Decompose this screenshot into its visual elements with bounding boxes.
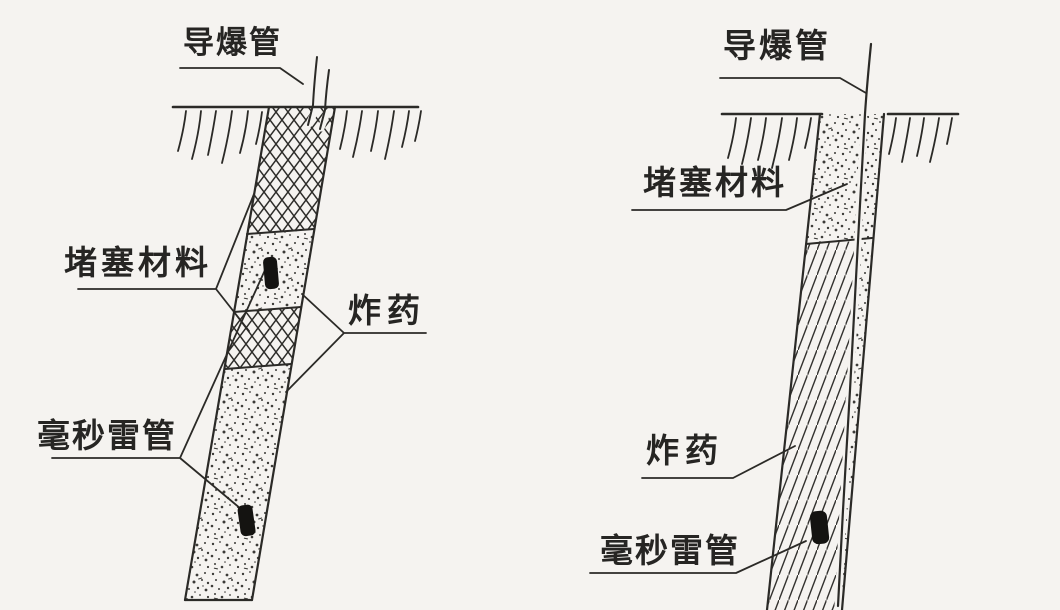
figure-canvas: 导爆管 堵塞材料 炸药 毫秒雷管 <box>0 0 1060 610</box>
right-label-detonating-tube: 导爆管 <box>723 27 831 64</box>
right-label-explosive: 炸药 <box>646 432 724 469</box>
left-label-stemming-material: 堵塞材料 <box>64 244 212 281</box>
left-explosive-section-2 <box>185 364 291 600</box>
left-label-explosive: 炸药 <box>348 292 426 329</box>
left-diagram: 导爆管 堵塞材料 炸药 毫秒雷管 <box>37 25 426 600</box>
right-leader-detonating-tube <box>720 78 866 93</box>
right-diagram: 导爆管 堵塞材料 炸药 毫秒雷管 <box>590 27 958 610</box>
right-label-millisecond-detonator: 毫秒雷管 <box>600 532 740 569</box>
right-detonator <box>809 510 829 545</box>
right-label-stemming-material: 堵塞材料 <box>643 164 787 201</box>
left-label-millisecond-detonator: 毫秒雷管 <box>37 417 177 454</box>
blasting-diagram-svg: 导爆管 堵塞材料 炸药 毫秒雷管 <box>0 0 1060 610</box>
left-detonator-upper <box>263 256 280 289</box>
left-borehole <box>185 107 335 600</box>
left-label-detonating-tube: 导爆管 <box>183 25 282 60</box>
left-leader-detonating-tube <box>180 68 303 84</box>
